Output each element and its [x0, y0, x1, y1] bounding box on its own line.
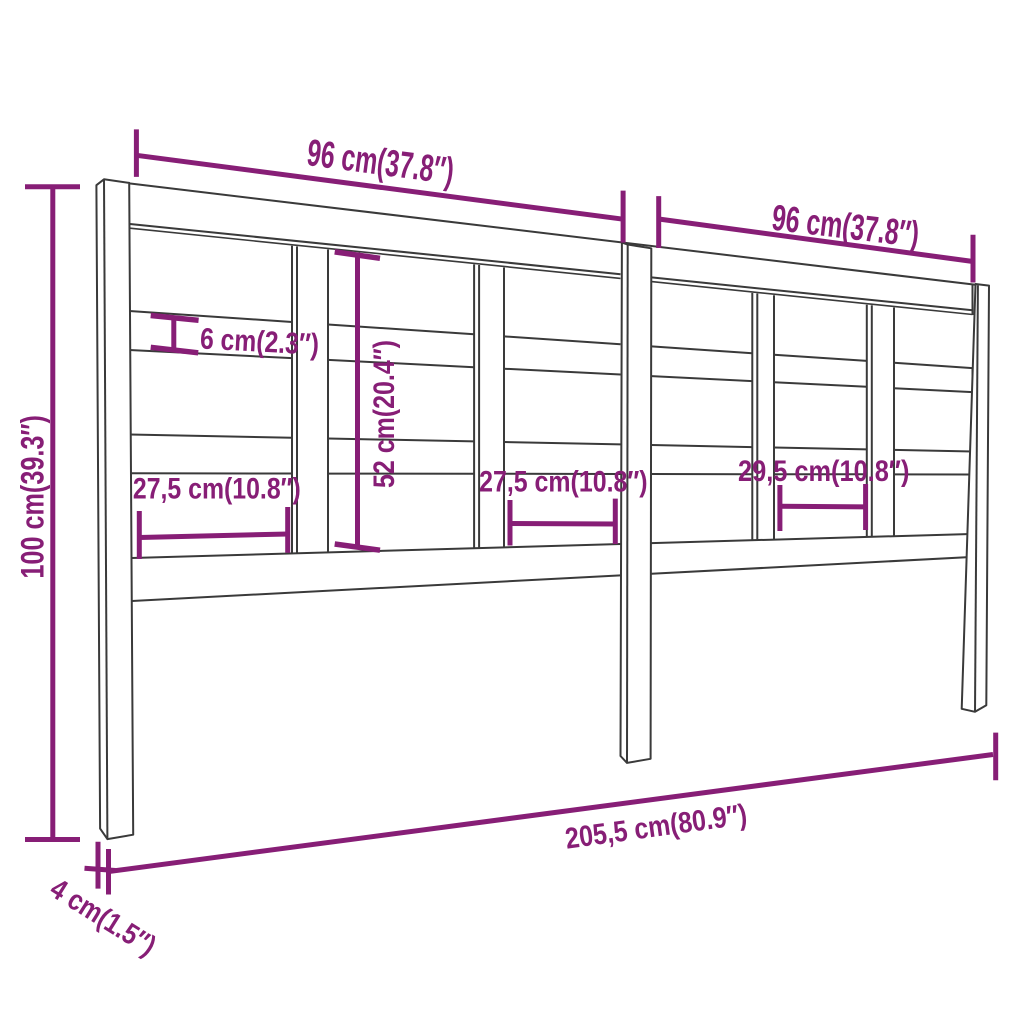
svg-text:27,5 cm(10.8″): 27,5 cm(10.8″) — [133, 473, 301, 506]
svg-text:100 cm(39.3″): 100 cm(39.3″) — [14, 415, 51, 579]
svg-text:6 cm(2.3″): 6 cm(2.3″) — [199, 323, 320, 362]
svg-text:52 cm(20.4″): 52 cm(20.4″) — [368, 340, 401, 488]
svg-text:29,5 cm(10.8″): 29,5 cm(10.8″) — [738, 455, 909, 488]
svg-text:27,5 cm(10.8″): 27,5 cm(10.8″) — [479, 465, 647, 498]
